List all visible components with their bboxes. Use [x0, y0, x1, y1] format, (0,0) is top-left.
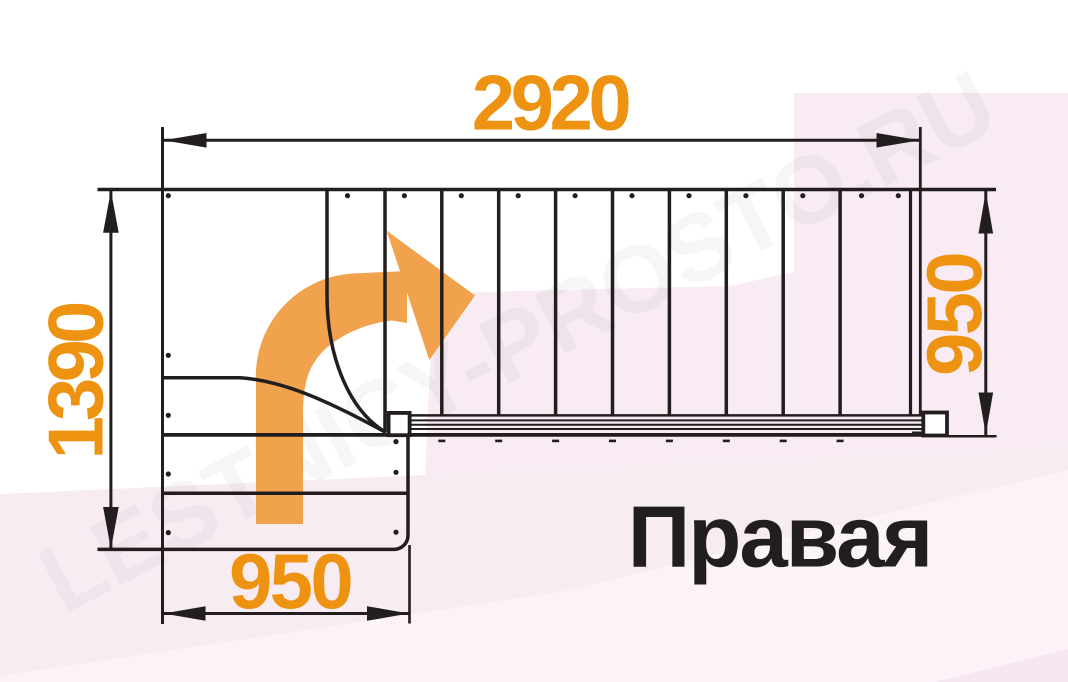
svg-text:1390: 1390: [32, 303, 120, 459]
svg-text:2920: 2920: [472, 59, 630, 147]
svg-text:950: 950: [910, 254, 998, 376]
svg-text:950: 950: [229, 537, 351, 625]
svg-text:Правая: Правая: [628, 489, 932, 586]
